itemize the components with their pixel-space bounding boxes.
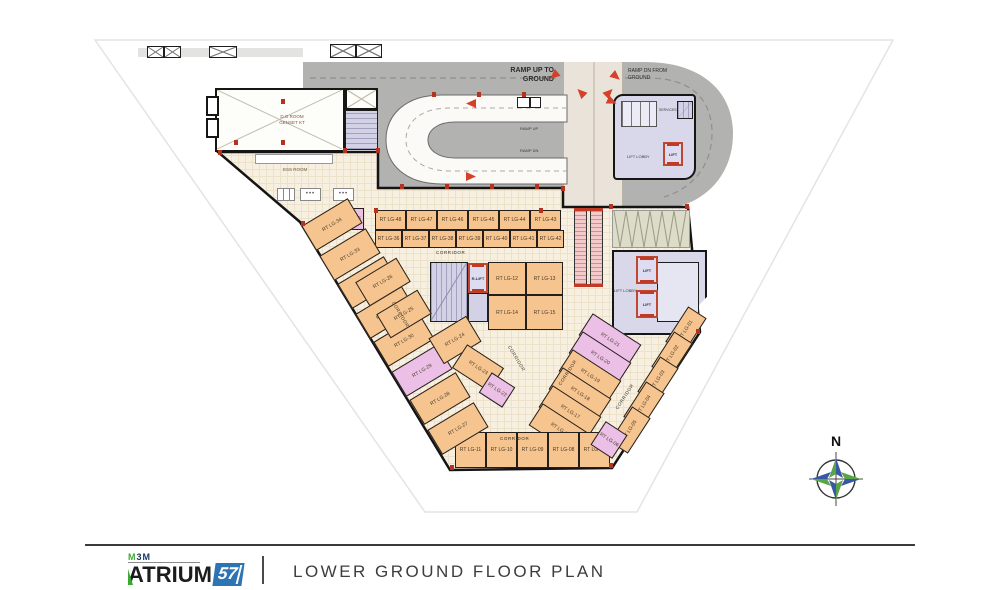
direction-arrow-7 (466, 172, 476, 181)
lift-lobby-east-label: LIFT LOBBY (614, 288, 637, 293)
vent-grille-1 (147, 46, 164, 58)
hatched-ramp (612, 210, 690, 248)
column-marker-12 (450, 465, 454, 470)
escalator-cap-top (574, 208, 603, 211)
dg-cell-2 (206, 118, 219, 138)
vent-grille-4 (330, 44, 356, 58)
vent-grille-3 (209, 46, 237, 58)
dg-cell-1 (206, 96, 219, 116)
loop-kiosk (517, 97, 541, 108)
vent-grille-5 (356, 44, 382, 58)
column-marker-4 (400, 184, 404, 189)
ramp-divider (593, 62, 595, 208)
lift-lobby-north: SERVICES LIFT LOBBY LIFT (613, 94, 696, 180)
vent-grille-2 (164, 46, 181, 58)
ess-panel (255, 154, 333, 164)
escalator-2 (590, 210, 603, 285)
shop-rt-lg-46: RT LG-46 (437, 210, 468, 230)
shop-rt-lg-48: RT LG-48 (375, 210, 406, 230)
brand-green-accent (128, 569, 133, 585)
shop-rt-lg-41: RT LG-41 (510, 230, 537, 248)
lift-east-1: LIFT (636, 256, 658, 284)
toilet-cells (621, 101, 657, 127)
brand-m3m: M3M (128, 553, 243, 561)
shop-rt-lg-38: RT LG-38 (429, 230, 456, 248)
column-marker-18 (374, 208, 378, 213)
shop-rt-lg-40: RT LG-40 (483, 230, 510, 248)
dg-room-label: D.G ROOMGENSET KT (262, 114, 322, 126)
lift-east-2: LIFT (636, 290, 658, 318)
floor-plan-sheet: RAMP UP TOGROUND RAMP DN FROMGROUND RAMP… (0, 0, 1000, 590)
ramp-up-label: RAMP UP TOGROUND (488, 66, 554, 84)
column-marker-10 (685, 204, 689, 209)
column-marker-21 (281, 140, 285, 145)
transformer-cells (277, 188, 295, 201)
column-marker-17 (376, 148, 380, 153)
shop-rt-lg-43: RT LG-43 (530, 210, 561, 230)
north-compass: N (795, 432, 877, 510)
shop-rt-lg-45: RT LG-45 (468, 210, 499, 230)
corridor-label-1: CORRIDOR (436, 250, 465, 255)
brand-logo: M3M ATRIUM 57 (128, 553, 243, 586)
shop-rt-lg-08: RT LG-08 (548, 432, 579, 468)
shop-rt-lg-13: RT LG-13 (526, 262, 563, 295)
column-marker-16 (343, 148, 347, 153)
transformer-1: ••• (300, 188, 321, 201)
direction-arrow-6 (466, 99, 476, 108)
services-label: SERVICES (659, 108, 677, 112)
column-marker-15 (218, 150, 222, 155)
column-marker-19 (539, 208, 543, 213)
column-marker-9 (609, 204, 613, 209)
shop-rt-lg-37: RT LG-37 (402, 230, 429, 248)
footer-rule (85, 544, 915, 546)
shop-rt-lg-36: RT LG-36 (375, 230, 402, 248)
ess-room-label: ESS ROOM (283, 167, 307, 172)
ramp-dn-small-label: RAMP DN (520, 148, 538, 153)
r-lift: R-LIFT (468, 263, 488, 293)
escalator-1 (574, 210, 587, 285)
brand-57-badge: 57 (212, 563, 244, 586)
column-marker-3 (522, 92, 526, 97)
stair-north-mini (677, 101, 693, 119)
column-marker-20 (281, 99, 285, 104)
shop-rt-lg-15: RT LG-15 (526, 295, 563, 330)
ramp-dn-label: RAMP DN FROMGROUND (628, 68, 678, 82)
shop-rt-lg-42: RT LG-42 (537, 230, 564, 248)
column-marker-6 (490, 184, 494, 189)
shaft-center (468, 293, 488, 322)
shop-rt-lg-12: RT LG-12 (488, 262, 526, 295)
brand-atrium: ATRIUM (128, 564, 212, 586)
escalator-cap-bottom (574, 284, 603, 287)
column-marker-22 (234, 140, 238, 145)
shop-rt-lg-39: RT LG-39 (456, 230, 483, 248)
lift-lobby-north-label: LIFT LOBBY (627, 154, 650, 159)
ramp-up-small-label: RAMP UP (520, 126, 538, 131)
lift-north: LIFT (663, 142, 683, 166)
column-marker-13 (609, 463, 613, 468)
service-x-room (345, 88, 378, 110)
stair-northwest (345, 110, 378, 150)
north-letter: N (831, 433, 841, 449)
column-marker-11 (696, 329, 700, 334)
column-marker-8 (561, 186, 565, 191)
column-marker-1 (432, 92, 436, 97)
shop-rt-lg-47: RT LG-47 (406, 210, 437, 230)
page-title: LOWER GROUND FLOOR PLAN (293, 562, 606, 582)
transformer-2: ••• (333, 188, 354, 201)
stair-center (430, 262, 468, 322)
shop-rt-lg-44: RT LG-44 (499, 210, 530, 230)
corridor-label-2: CORRIDOR (500, 436, 529, 441)
column-marker-7 (535, 184, 539, 189)
shop-rt-lg-14: RT LG-14 (488, 295, 526, 330)
column-marker-2 (477, 92, 481, 97)
column-marker-14 (301, 221, 305, 226)
footer-separator (262, 556, 264, 584)
column-marker-5 (445, 184, 449, 189)
